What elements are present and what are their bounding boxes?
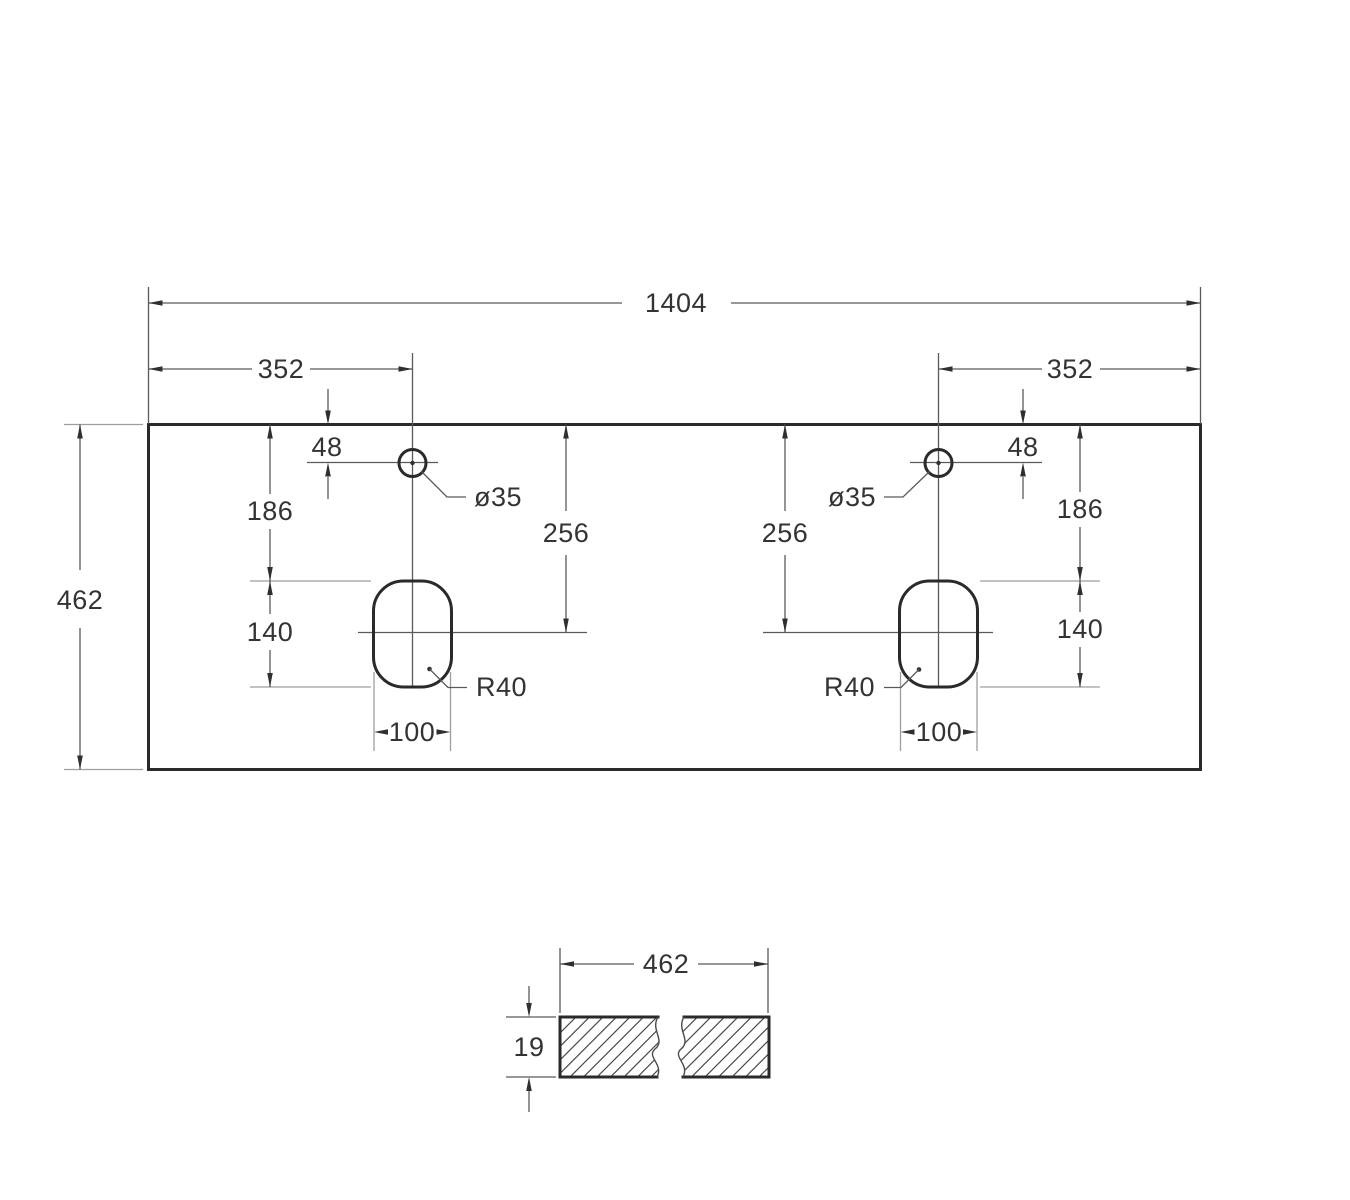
dim-depth: 462 [57, 425, 104, 770]
arrow-up [325, 463, 331, 477]
section-slab-right-hatch [678, 1017, 769, 1077]
arrow-down [1077, 567, 1083, 581]
top-view: 1404 352 352 48 [57, 287, 1201, 770]
dim-edge-to-cutout-center-right: 256 [762, 425, 809, 633]
arrow-right [754, 961, 768, 967]
section-view: 462 19 [506, 948, 769, 1112]
arrow-up [1077, 425, 1083, 439]
dim-edge-to-cutout-center-left-label: 256 [543, 518, 590, 548]
faucet-center-dot-left [410, 461, 414, 465]
dim-cutout-width-left-label: 100 [389, 717, 436, 747]
arrow-up [267, 581, 273, 595]
arrow-up [267, 425, 273, 439]
arrow-down [563, 619, 569, 633]
arrow-up [1077, 581, 1083, 595]
section-slab-left-hatch [560, 1017, 659, 1077]
dim-cutout-length-left: 140 [247, 581, 294, 687]
arrow-down [325, 411, 331, 425]
leader-faucet-diameter-right-label: ø35 [828, 482, 876, 512]
countertop-outline [149, 425, 1201, 770]
dim-overall-width-label: 1404 [645, 288, 707, 318]
dim-edge-to-cutout-right-label: 186 [1057, 494, 1104, 524]
arrow-down [526, 1003, 532, 1017]
dim-faucet-offset-right: 352 [939, 354, 1201, 384]
dim-edge-to-cutout-left-label: 186 [247, 496, 294, 526]
dim-faucet-offset-right-label: 352 [1047, 354, 1094, 384]
dim-edge-to-cutout-center-left: 256 [543, 425, 590, 633]
arrow-right [963, 729, 977, 735]
technical-drawing-svg: 1404 352 352 48 [0, 0, 1350, 1200]
dim-faucet-setback-left: 48 [311, 389, 342, 499]
dim-edge-to-cutout-left: 186 [247, 425, 294, 582]
arrow-right [399, 366, 413, 372]
dim-depth-label: 462 [57, 585, 104, 615]
arrow-up [782, 425, 788, 439]
leader-cutout-radius-right-label: R40 [824, 672, 875, 702]
arrow-down [267, 567, 273, 581]
arrow-right [1187, 300, 1201, 306]
leader-faucet-diameter-left-label: ø35 [474, 482, 522, 512]
arrow-up [77, 425, 83, 439]
arrow-left [149, 300, 163, 306]
arrow-up [563, 425, 569, 439]
arrow-down [77, 756, 83, 770]
arrow-right [1187, 366, 1201, 372]
dim-faucet-setback-right-label: 48 [1007, 432, 1038, 462]
dim-faucet-offset-left: 352 [149, 354, 413, 384]
arrow-left [939, 366, 953, 372]
drawing-canvas: 1404 352 352 48 [0, 0, 1350, 1200]
arrow-down [1077, 673, 1083, 687]
dim-section-width-label: 462 [643, 949, 690, 979]
dim-section-thickness: 19 [506, 986, 556, 1112]
arrow-up [526, 1077, 532, 1091]
arrow-down [267, 673, 273, 687]
arrow-left [374, 729, 388, 735]
leader-faucet-diameter-left: ø35 [422, 472, 523, 513]
arrow-left [149, 366, 163, 372]
dim-cutout-width-left: 100 [374, 717, 451, 747]
leader-faucet-diameter-right: ø35 [828, 472, 930, 513]
dim-faucet-offset-left-label: 352 [258, 354, 305, 384]
dim-overall-width: 1404 [149, 288, 1201, 318]
faucet-center-dot-right [936, 461, 940, 465]
dim-section-thickness-label: 19 [513, 1032, 544, 1062]
dim-section-width: 462 [560, 948, 768, 1013]
dim-cutout-length-left-label: 140 [247, 617, 294, 647]
dim-cutout-width-right: 100 [901, 717, 978, 747]
dim-cutout-width-right-label: 100 [916, 717, 963, 747]
arrow-left [560, 961, 574, 967]
leader-cutout-radius-left-label: R40 [476, 672, 527, 702]
arrow-down [782, 619, 788, 633]
dim-edge-to-cutout-right: 186 [1057, 425, 1104, 582]
leader-cutout-radius-left: R40 [427, 667, 527, 702]
dim-faucet-setback-left-label: 48 [311, 432, 342, 462]
dim-edge-to-cutout-center-right-label: 256 [762, 518, 809, 548]
arrow-left [901, 729, 915, 735]
arrow-down [1020, 411, 1026, 425]
arrow-up [1020, 463, 1026, 477]
arrow-right [437, 729, 451, 735]
dim-cutout-length-right: 140 [1057, 581, 1104, 687]
dim-faucet-setback-right: 48 [1007, 389, 1038, 499]
dim-cutout-length-right-label: 140 [1057, 614, 1104, 644]
leader-cutout-radius-right: R40 [824, 667, 921, 702]
